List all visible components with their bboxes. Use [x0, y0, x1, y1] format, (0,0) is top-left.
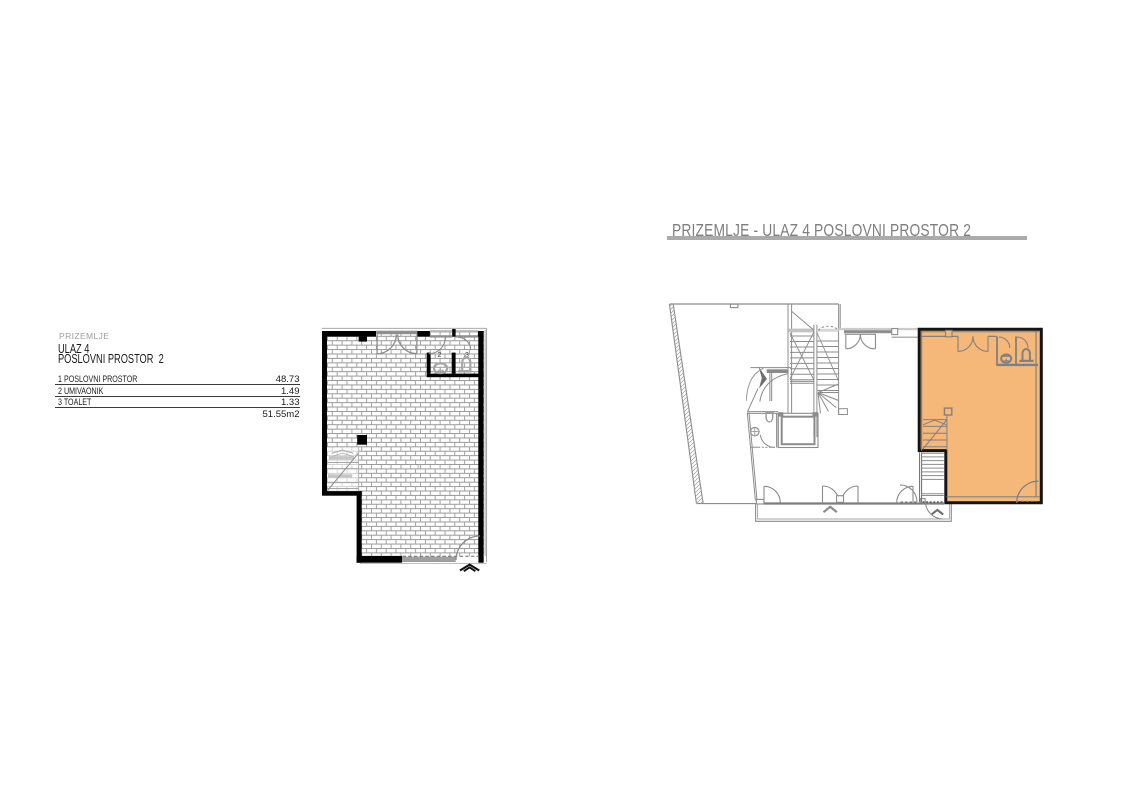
svg-text:2: 2 [438, 352, 442, 359]
svg-text:1: 1 [416, 464, 420, 471]
